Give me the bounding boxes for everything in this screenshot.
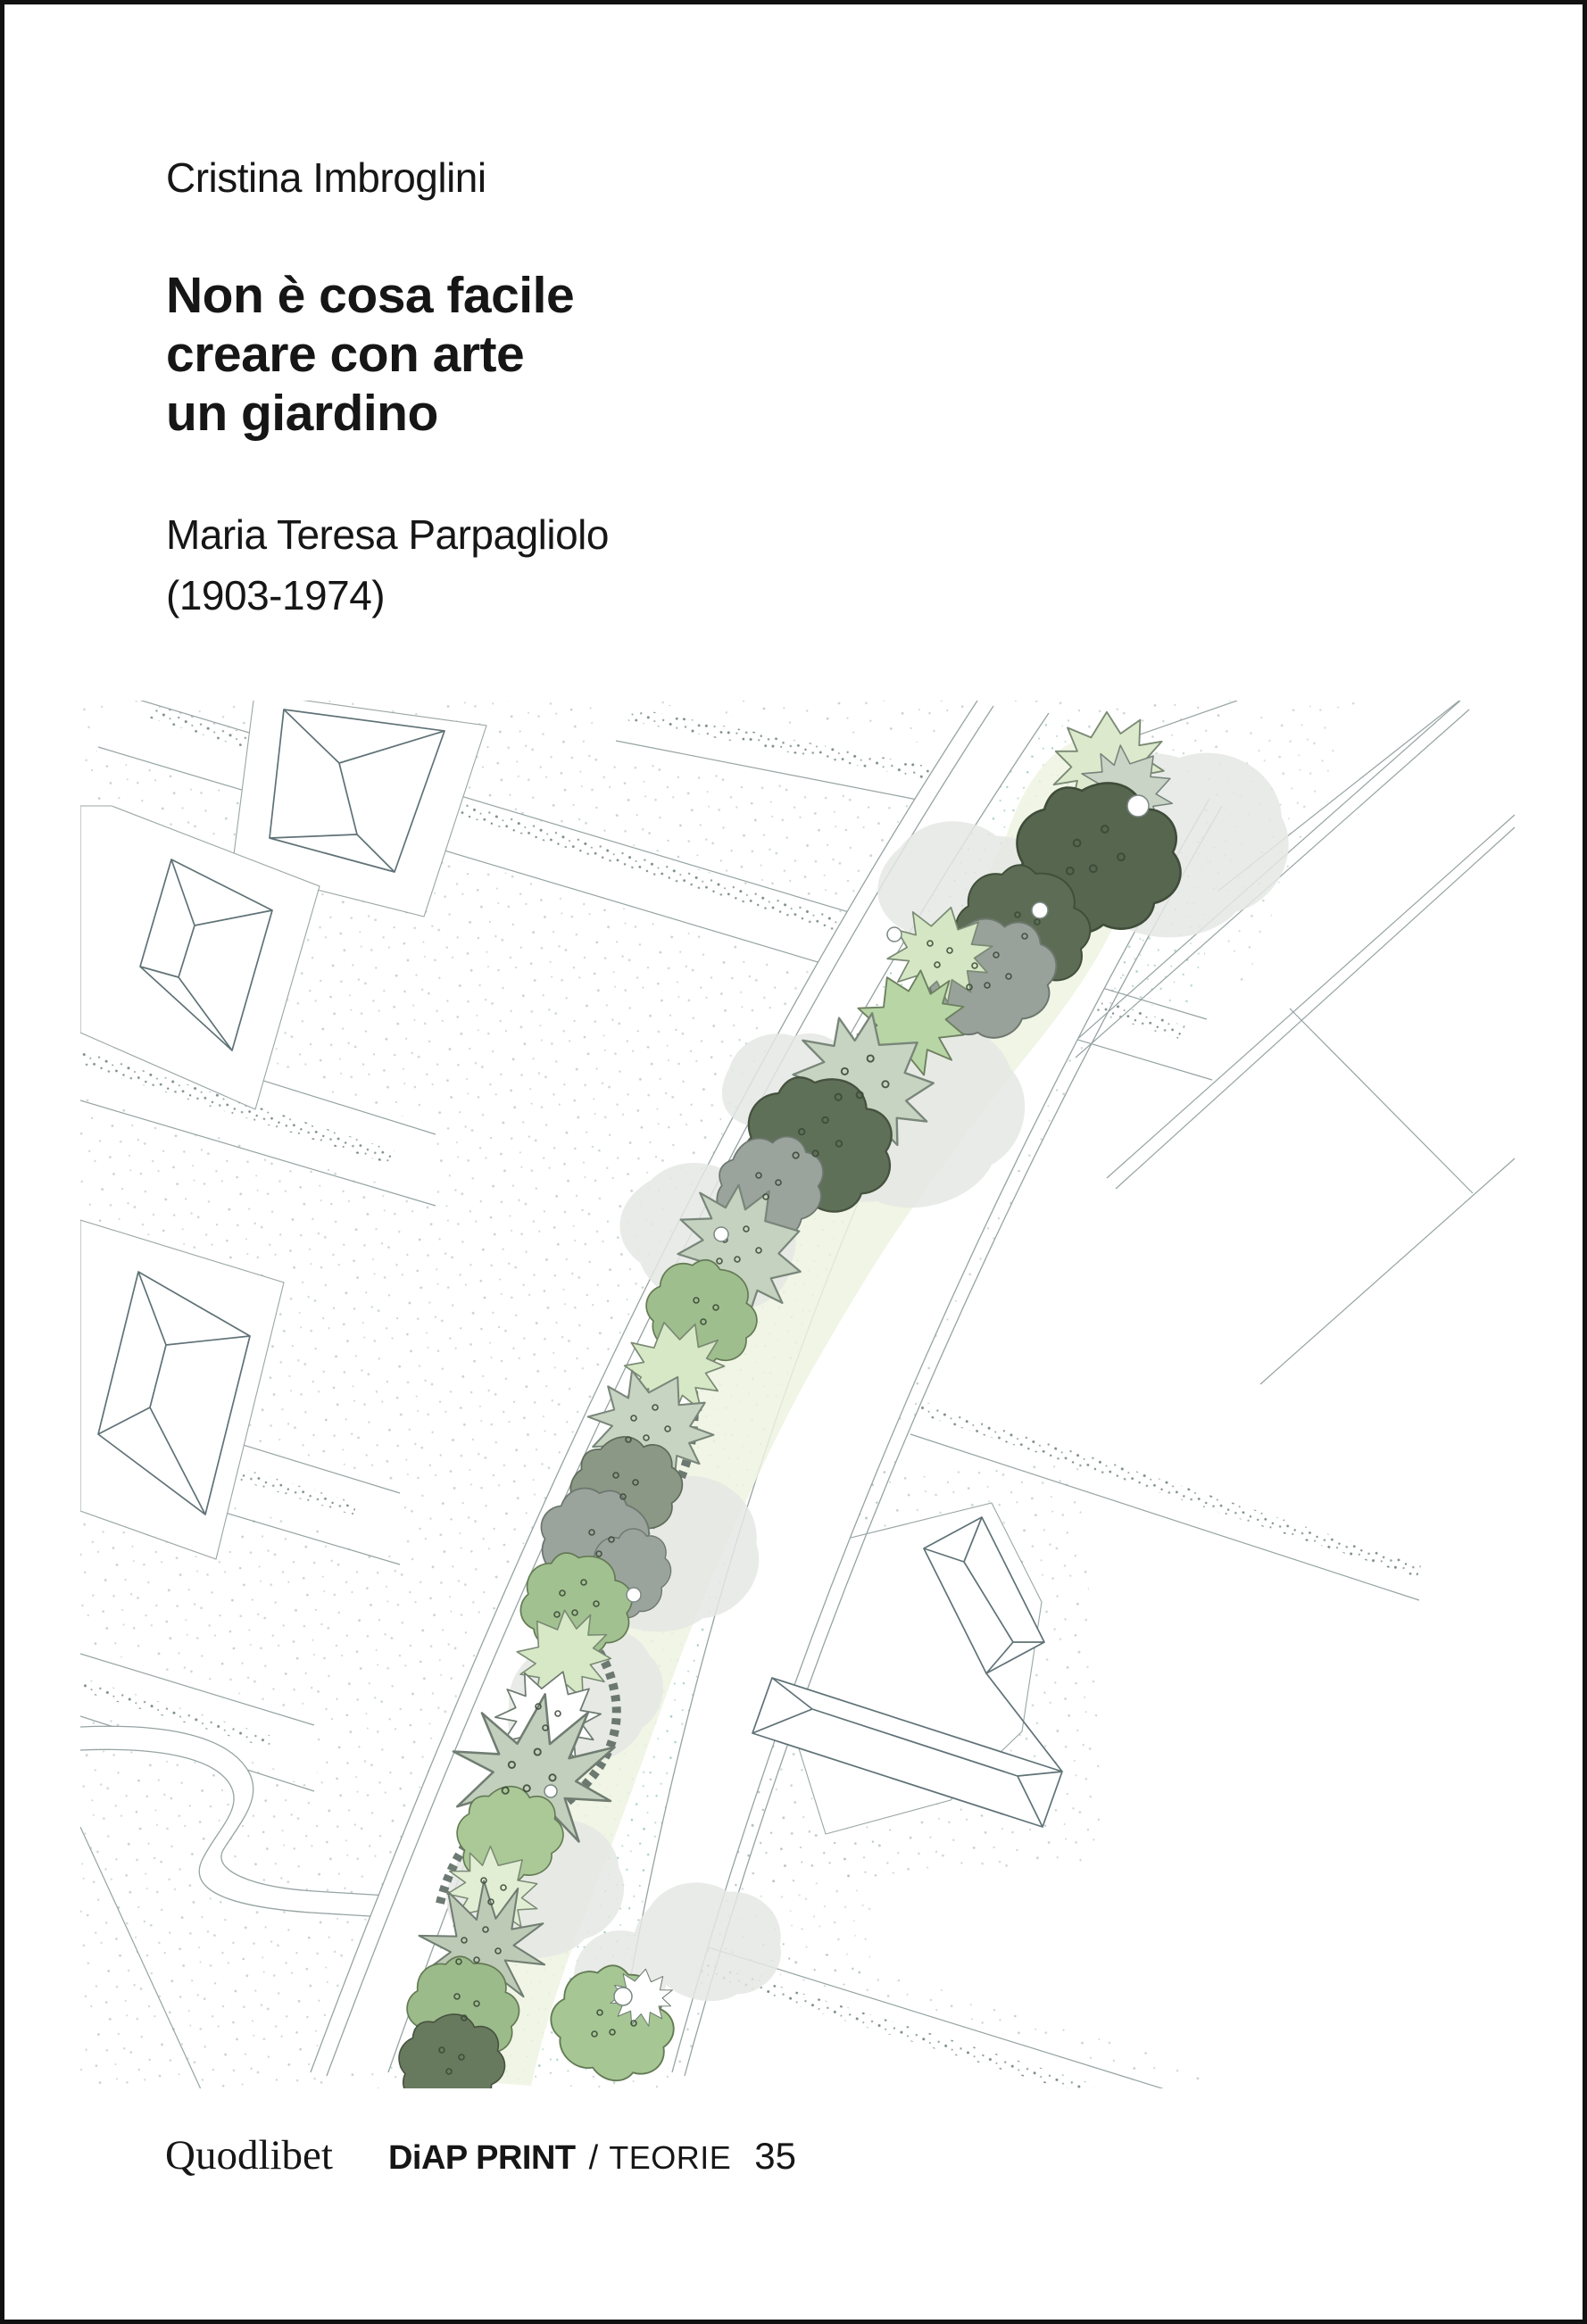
colophon: Quodlibet DiAP PRINT / TEORIE 35 <box>165 2131 796 2179</box>
title-line-2: creare con arte <box>166 325 574 384</box>
book-subtitle: Maria Teresa Parpagliolo (1903-1974) <box>166 504 609 626</box>
separator-slash: / <box>589 2139 599 2178</box>
book-cover: Cristina Imbroglini Non è cosa facile cr… <box>0 0 1587 2324</box>
title-line-1: Non è cosa facile <box>166 266 574 325</box>
publisher-logo: Quodlibet <box>165 2131 333 2179</box>
subtitle-line-2: (1903-1974) <box>166 565 609 626</box>
series-number: 35 <box>754 2135 796 2178</box>
subtitle-line-1: Maria Teresa Parpagliolo <box>166 504 609 565</box>
title-line-3: un giardino <box>166 384 574 443</box>
author-name: Cristina Imbroglini <box>166 154 486 202</box>
book-title: Non è cosa facile creare con arte un gia… <box>166 266 574 443</box>
imprint-name: DiAP PRINT <box>388 2139 576 2178</box>
garden-plan-illustration <box>80 701 1517 2088</box>
series-name: TEORIE <box>609 2139 731 2177</box>
